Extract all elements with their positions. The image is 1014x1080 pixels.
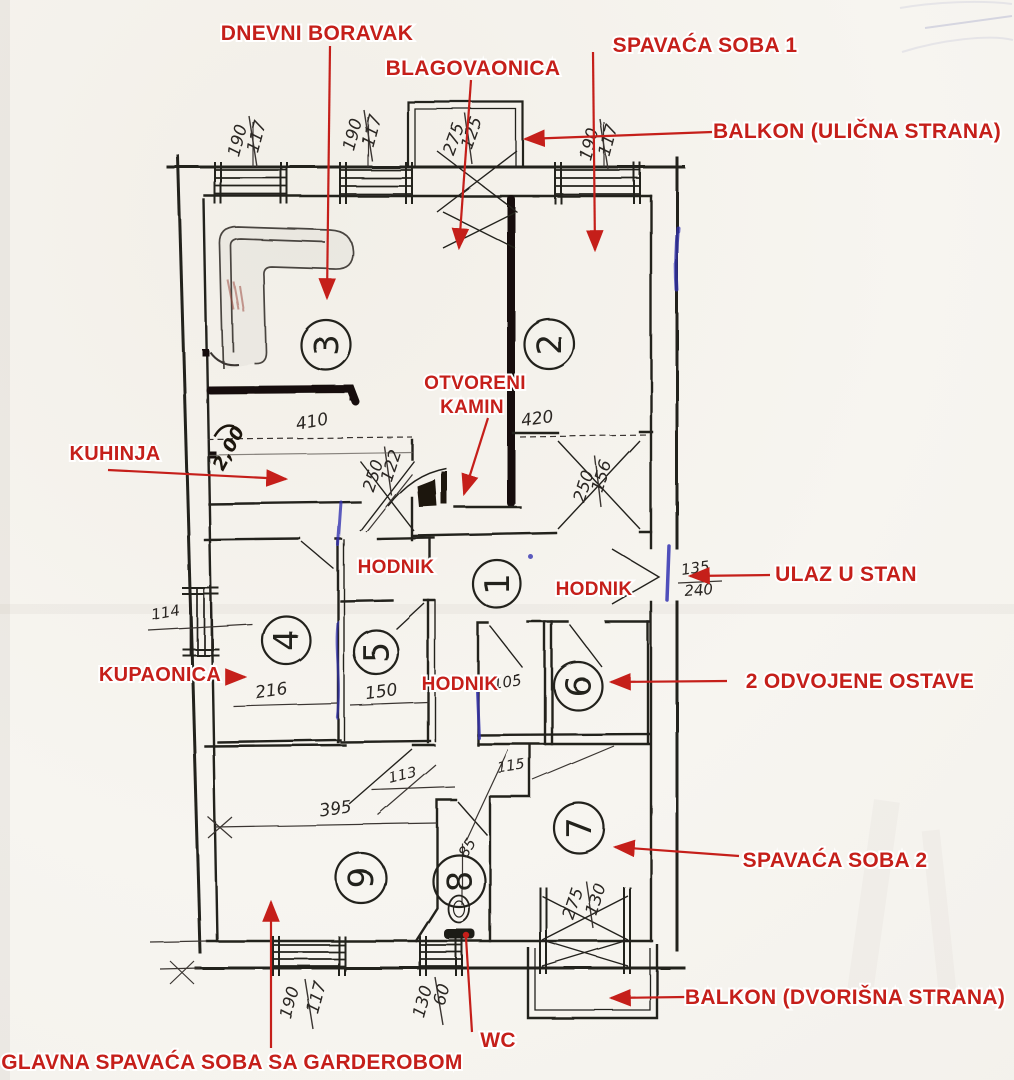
dim-entry-h: 240 <box>684 580 714 600</box>
label-ostave: 2 ODVOJENE OSTAVE <box>746 670 974 693</box>
label-hodnik-b: HODNIK <box>556 579 633 600</box>
label-hodnik-a: HODNIK <box>358 557 435 578</box>
arrow-ulaz-u-stan <box>690 575 770 576</box>
room-number-4: 4 <box>267 629 307 651</box>
floor-plan-svg: 1 2 3 4 5 6 7 8 9 190 117 190 117 275 12… <box>0 0 1014 1080</box>
label-balkon-ulicna: BALKON (ULIČNA STRANA) <box>713 119 1001 143</box>
label-kupaonica: KUPAONICA <box>99 664 221 686</box>
room-number-3: 3 <box>307 334 347 356</box>
label-spavaca-soba-1: SPAVAĆA SOBA 1 <box>613 33 798 57</box>
label-blagovaonica: BLAGOVAONICA <box>386 57 561 80</box>
room-number-9: 9 <box>342 867 382 889</box>
arrow-ostave <box>611 681 727 682</box>
label-otvoreni-kamin-line2: KAMIN <box>440 397 504 418</box>
label-dnevni-boravak: DNEVNI BORAVAK <box>221 22 413 45</box>
room-number-8: 8 <box>440 870 480 892</box>
paper-background <box>0 0 1014 1080</box>
dim-room9-width: 395 <box>318 797 353 821</box>
arrow-balkon-dvorisna <box>611 997 685 998</box>
label-balkon-dvorisna: BALKON (DVORIŠNA STRANA) <box>685 985 1005 1009</box>
room-number-5: 5 <box>357 641 397 663</box>
room-number-7: 7 <box>560 817 600 839</box>
label-otvoreni-kamin-line1: OTVORENI <box>424 373 526 394</box>
room-number-1: 1 <box>478 573 518 595</box>
floor-plan-page: 1 2 3 4 5 6 7 8 9 190 117 190 117 275 12… <box>0 0 1014 1080</box>
room-number-2: 2 <box>530 333 570 355</box>
label-ulaz-u-stan: ULAZ U STAN <box>775 563 917 586</box>
label-wc: WC <box>480 1029 516 1052</box>
label-spavaca-soba-2: SPAVAĆA SOBA 2 <box>743 848 928 872</box>
label-kuhinja: KUHINJA <box>70 443 161 465</box>
label-hodnik-c: HODNIK <box>422 674 499 695</box>
room-number-6: 6 <box>559 675 599 697</box>
label-glavna-spavaca: GLAVNA SPAVAĆA SOBA SA GARDEROBOM <box>1 1050 462 1074</box>
